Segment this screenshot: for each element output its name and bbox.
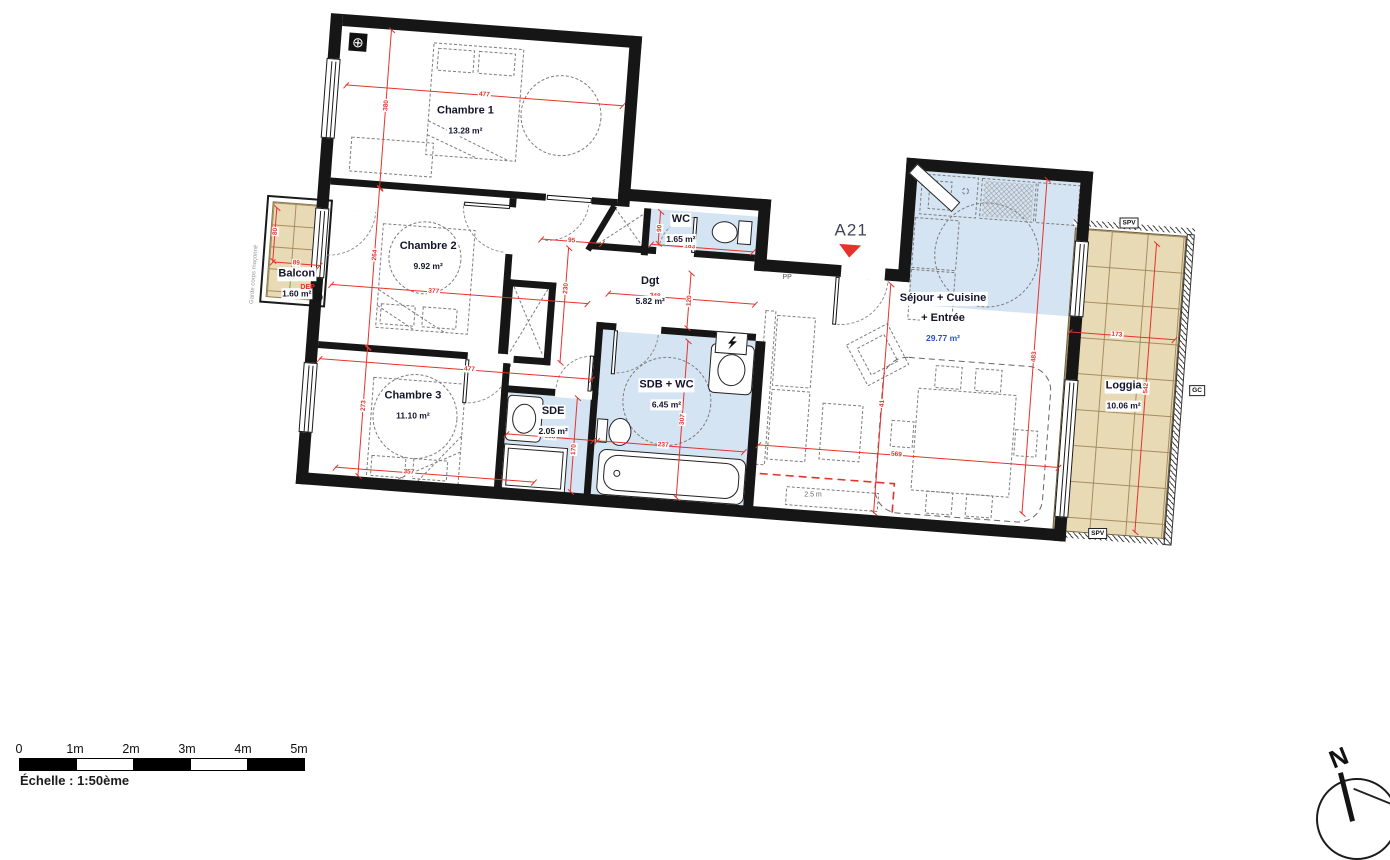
room-label-sde: SDE2.05 m² <box>538 400 569 440</box>
room-label-chambre-2: Chambre 29.92 m² <box>399 235 458 275</box>
drain-label: DEP <box>300 284 314 291</box>
room-label-chambre-3: Chambre 311.10 m² <box>383 384 442 424</box>
spv-tag-bottom: SPV <box>1088 528 1107 539</box>
room-label-dgt: Dgt5.82 m² <box>635 270 666 310</box>
room-label-wc: WC1.65 m² <box>665 208 696 248</box>
lightning-bolt-icon <box>723 334 740 351</box>
apartment-pointer-icon <box>838 244 861 259</box>
room-label-s-jour-cuisine: Séjour + Cuisine+ Entrée29.77 m² <box>899 287 988 347</box>
electrical-panel <box>715 331 749 355</box>
room-label-balcon: Balcon1.60 m² <box>277 262 316 302</box>
drain-symbol-icon: ⊕ <box>313 291 326 304</box>
scale-tick: 5m <box>290 742 307 756</box>
spv-tag-top: SPV <box>1120 218 1139 229</box>
scale-bar-segments <box>19 758 305 771</box>
room-label-loggia: Loggia10.06 m² <box>1105 375 1143 415</box>
wc-toilet-tank <box>737 220 753 245</box>
north-label: N <box>1325 742 1353 776</box>
tv-zone-label: 2.5 m <box>804 492 822 499</box>
scale-tick: 1m <box>66 742 83 756</box>
apartment-id-label: A21 <box>835 221 868 241</box>
scale-tick: 2m <box>122 742 139 756</box>
shower-inner <box>505 448 564 490</box>
scale-caption: Échelle : 1:50ème <box>20 773 129 788</box>
scale-tick: 3m <box>178 742 195 756</box>
room-label-sdb-wc: SDB + WC6.45 m² <box>638 373 694 413</box>
survey-point-icon: ⊕ <box>348 33 367 52</box>
room-label-chambre-1: Chambre 113.28 m² <box>436 99 495 139</box>
entrance-door-label: PP <box>782 274 791 281</box>
floor-plan-page: { "apartment_id": "A21", "rooms": [ {"na… <box>0 0 1390 800</box>
scale-tick: 0 <box>16 742 23 756</box>
gc-tag: GC <box>1189 385 1205 396</box>
scale-tick: 4m <box>234 742 251 756</box>
